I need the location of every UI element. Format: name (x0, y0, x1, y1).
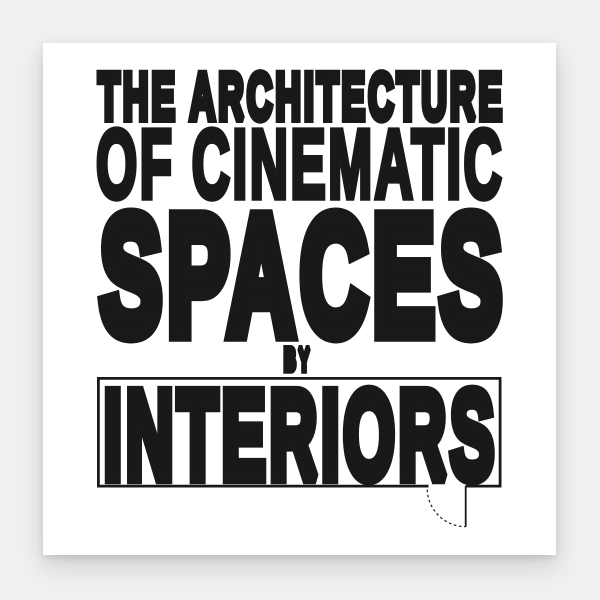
svg-text:INTERIORS: INTERIORS (104, 366, 498, 505)
